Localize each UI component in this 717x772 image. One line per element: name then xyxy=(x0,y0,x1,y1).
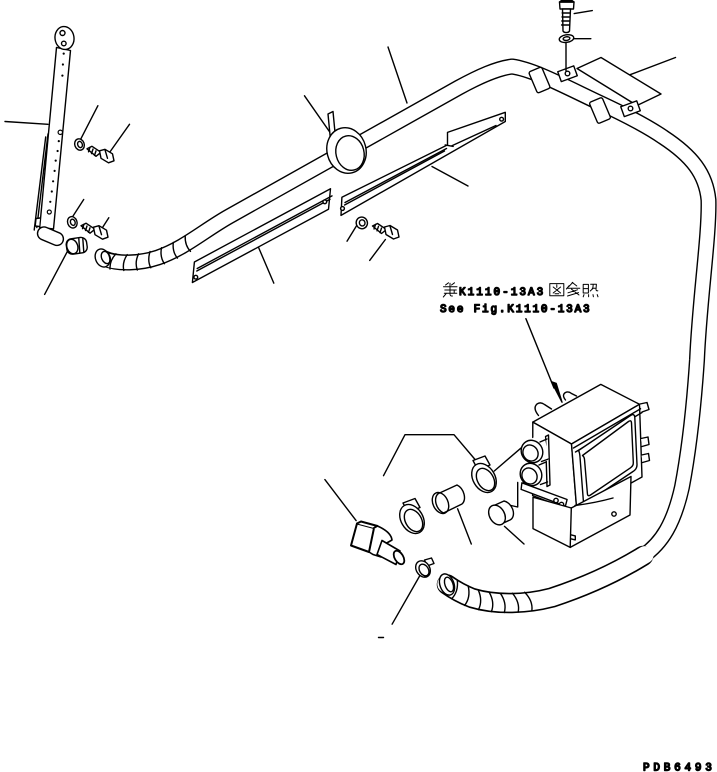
svg-text:K1110-13A3: K1110-13A3 xyxy=(459,287,545,299)
svg-text:See Fig.K1110-13A3: See Fig.K1110-13A3 xyxy=(440,304,591,316)
svg-text:PDB6493: PDB6493 xyxy=(643,763,716,772)
